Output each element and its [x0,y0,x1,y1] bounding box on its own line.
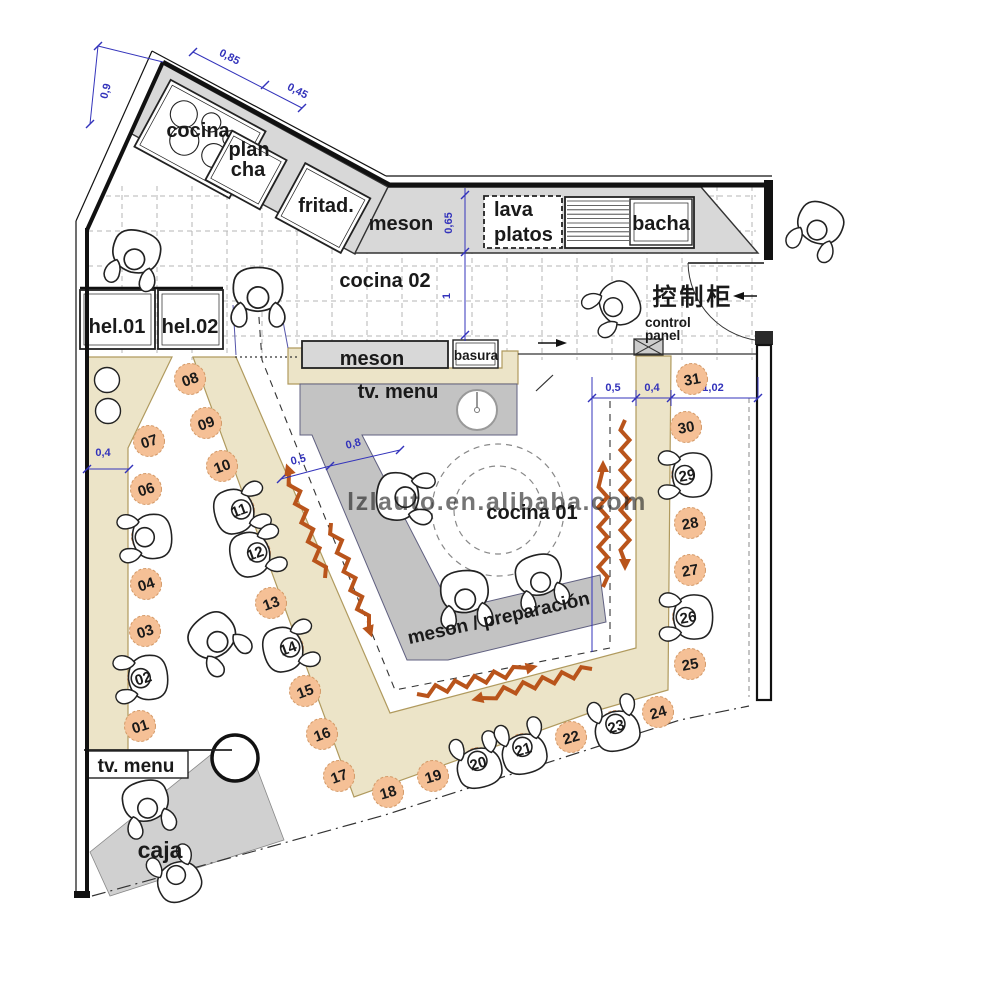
seat-number: 30 [676,418,695,438]
seat-27: 27 [675,555,706,586]
wall-left-cap [74,891,90,898]
seat-24: 24 [643,697,674,728]
seat-03: 03 [130,616,161,647]
seat-08: 08 [175,364,206,395]
seat-04: 04 [131,569,162,600]
person-icon [783,195,851,265]
seat-19: 19 [418,761,449,792]
watermark-text: lzlauto.en.alibaba.com [347,488,647,516]
seat-28: 28 [675,508,706,539]
person-icon [179,603,255,680]
wall-right-upper [764,180,773,260]
seat-number: 26 [678,608,697,628]
seat-10: 10 [207,451,238,482]
round-stool-1 [95,368,120,393]
seat-25: 25 [675,649,706,680]
seat-number: 29 [677,466,696,486]
dim-0-9: 0,9 [98,82,114,100]
label-cocina: cocina [166,120,230,142]
label-platos: platos [494,224,553,246]
dim-0-45: 0,45 [285,81,310,101]
dim-1: 1 [441,293,453,299]
wall-right [757,345,771,700]
label-tv-menu-island: tv. menu [358,381,439,403]
label-lava: lava [494,199,534,221]
label-fritad: fritad. [298,195,354,217]
label-meson-mid: meson [340,348,404,370]
flow-zigzag-arrow [599,469,608,587]
seat-number: 25 [680,655,699,675]
dim-0-4-right: 0,4 [644,382,660,394]
dim-tick [261,81,269,89]
round-table [212,735,258,781]
flow-arrowhead-icon [597,460,609,472]
wall-column [755,331,773,345]
seat-18: 18 [373,777,404,808]
seat-number: 28 [680,514,699,534]
label-plancha-1: plan [228,139,269,161]
arrow-right-icon [556,339,567,347]
round-stool-2 [96,399,121,424]
label-hel02: hel.02 [162,316,219,338]
flow-arrowhead-icon [619,559,631,571]
dim-0-5-right: 0,5 [605,382,620,394]
label-caja: caja [138,837,183,863]
break-mark [536,375,553,391]
person-icon [231,268,285,327]
seat-09: 09 [191,408,222,439]
dim-tick [298,104,306,112]
seat-06: 06 [131,474,162,505]
label-hel01: hel.01 [89,316,146,338]
dim-tick [189,48,197,56]
dim-0-4-left: 0,4 [95,447,111,459]
seat-30: 30 [671,412,702,443]
wall-clock [457,390,497,430]
seat-number: 27 [680,561,699,581]
floor-plan-drawing: 0,9 0,85 0,45 0,65 1 0,4 0,5 0,8 0,5 0,4… [0,0,1000,998]
seat-31: 31 [677,364,708,395]
arrow-left-icon [733,292,744,300]
seat-01: 01 [125,711,156,742]
label-meson-top: meson [369,213,433,235]
label-control-2: panel [645,328,680,343]
seat-13: 13 [256,588,287,619]
label-control-cabinet-cn: 控制柜 [653,283,734,311]
seat-number: 31 [682,370,701,390]
person-icon [579,273,648,340]
seat-22: 22 [556,722,587,753]
label-cocina02: cocina 02 [339,270,430,292]
flow-arrowhead-icon [525,663,538,675]
seat-15: 15 [290,676,321,707]
dim-0-85: 0,85 [217,47,242,67]
seat-17: 17 [324,761,355,792]
seat-07: 07 [134,426,165,457]
label-tv-menu-bottom: tv. menu [98,756,175,777]
label-basura: basura [454,348,499,363]
label-bacha: bacha [632,213,691,235]
floor-plan-canvas: 0,9 0,85 0,45 0,65 1 0,4 0,5 0,8 0,5 0,4… [0,0,1000,998]
seat-16: 16 [307,719,338,750]
dim-0-65: 0,65 [443,212,455,233]
label-plancha-2: cha [231,159,266,181]
dim-tick [396,446,404,454]
